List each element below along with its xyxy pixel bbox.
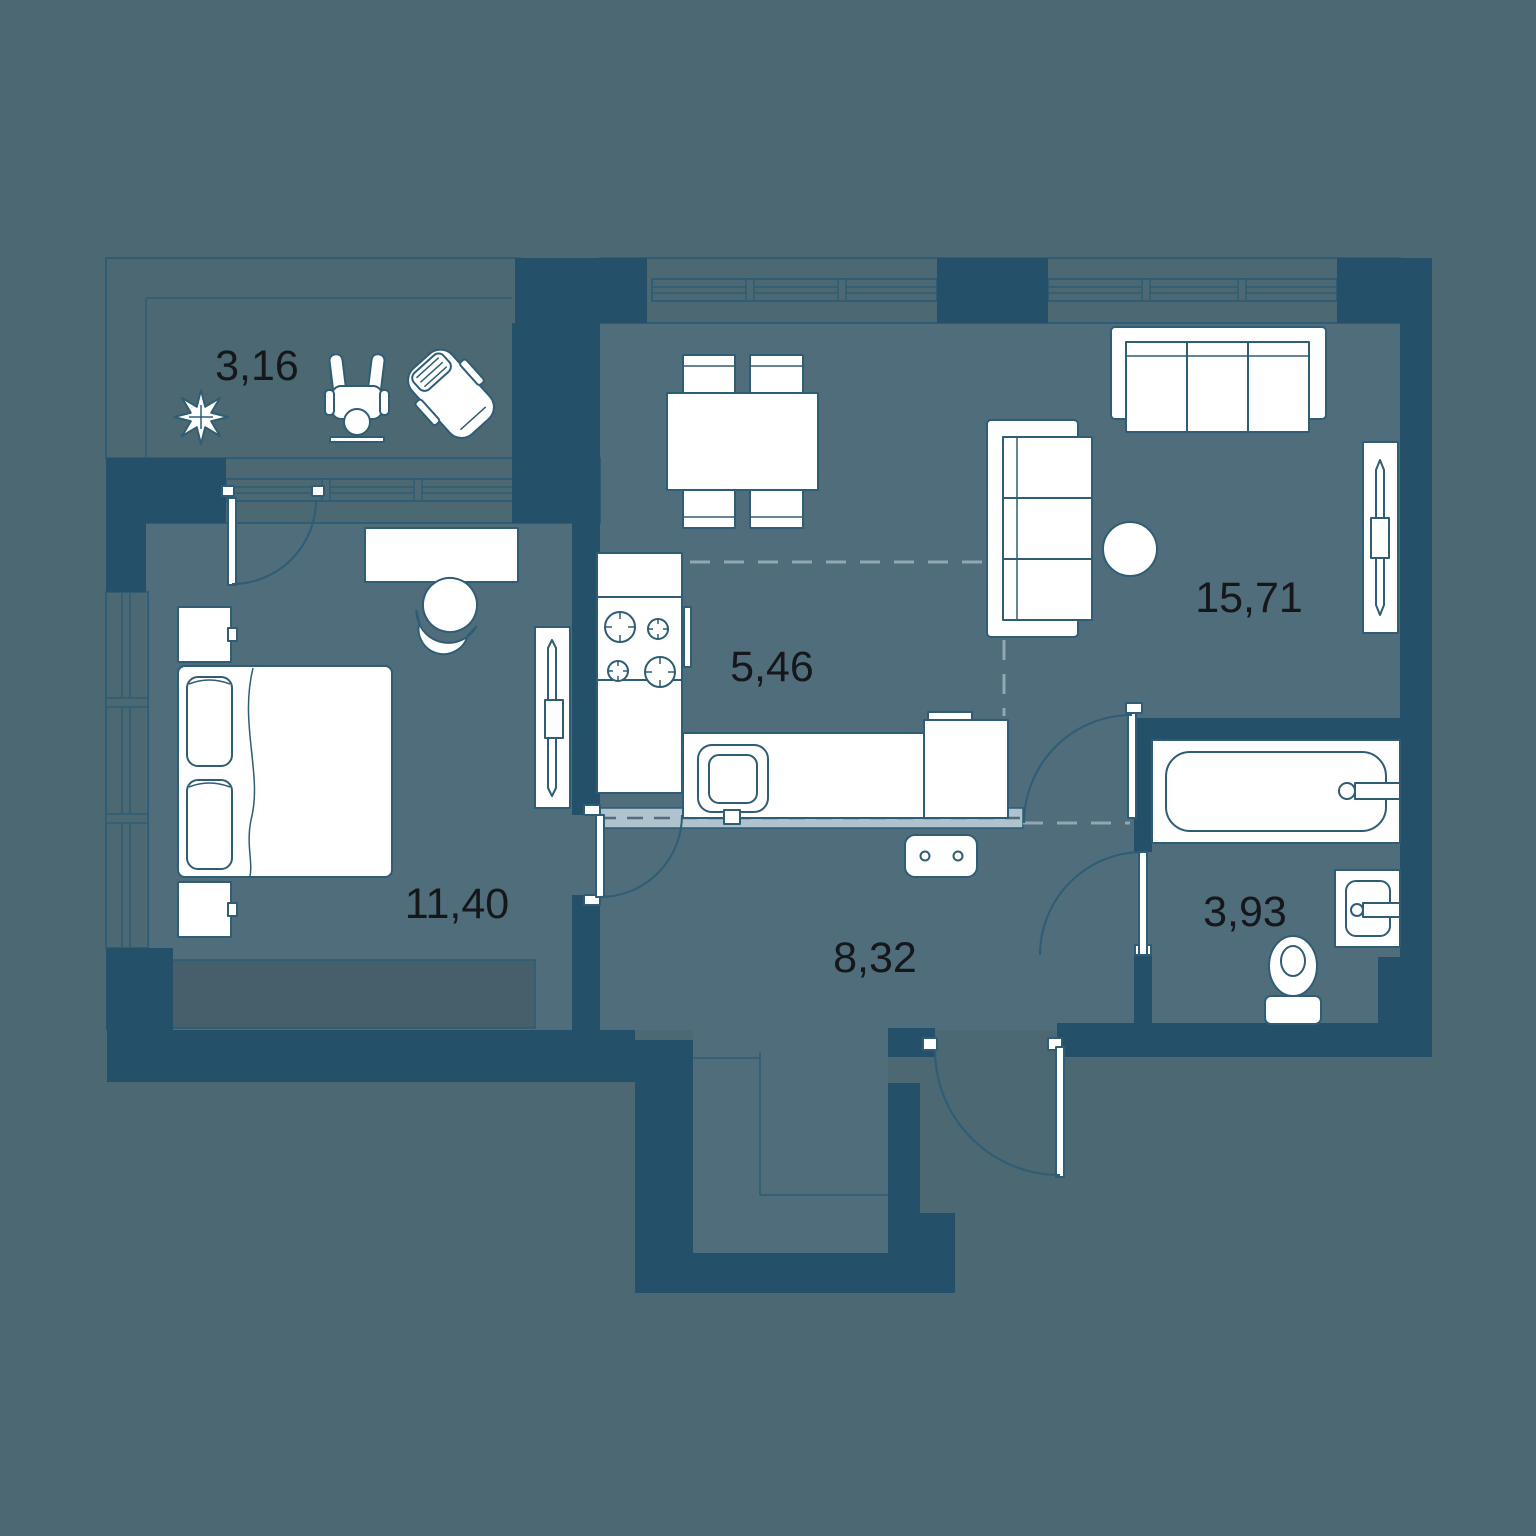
desk [365, 528, 518, 582]
wardrobe [1363, 442, 1398, 633]
lounge-chair-icon [396, 338, 505, 449]
loveseat [987, 420, 1092, 637]
kitchen-cabinets [597, 553, 691, 793]
area-label-bathroom: 3,93 [1203, 888, 1287, 936]
seated-person-icon [325, 354, 389, 442]
chair [750, 355, 803, 393]
bedroom-closet-niche [169, 960, 535, 1028]
nightstand [178, 882, 231, 937]
pillow [187, 677, 232, 766]
living-room-window [1048, 279, 1337, 301]
entry-corridor-floor [693, 1030, 888, 1253]
toilet [1265, 936, 1321, 1024]
sofa [1111, 327, 1326, 432]
pillow [187, 780, 232, 869]
area-label-bedroom: 11,40 [405, 880, 509, 928]
chair [750, 490, 803, 528]
fridge [924, 720, 1008, 818]
chair [683, 490, 735, 528]
switch-panel [905, 835, 977, 877]
coffee-table [1103, 522, 1157, 576]
area-label-kitchen: 5,46 [730, 643, 814, 691]
bedroom-balcony-window [226, 479, 515, 501]
floor-plan-svg: 3,16 5,46 15,71 11,40 8,32 3,93 [0, 0, 1536, 1536]
area-label-living-room: 15,71 [1195, 574, 1303, 622]
dining-table [667, 393, 818, 490]
kitchen-window [652, 279, 937, 301]
hallway-fixtures [905, 835, 977, 877]
chair [683, 355, 735, 393]
entrance-door [923, 1038, 1064, 1177]
double-bed [178, 666, 392, 877]
area-label-hallway: 8,32 [833, 934, 917, 982]
bathroom-sink [1335, 870, 1400, 947]
bedroom-side-window [106, 592, 148, 948]
area-label-balcony: 3,16 [215, 342, 299, 390]
plant-icon [174, 390, 228, 444]
floor-plan: 3,16 5,46 15,71 11,40 8,32 3,93 [0, 0, 1536, 1536]
wardrobe [535, 627, 570, 808]
bathtub [1152, 740, 1400, 843]
nightstand [178, 607, 231, 662]
